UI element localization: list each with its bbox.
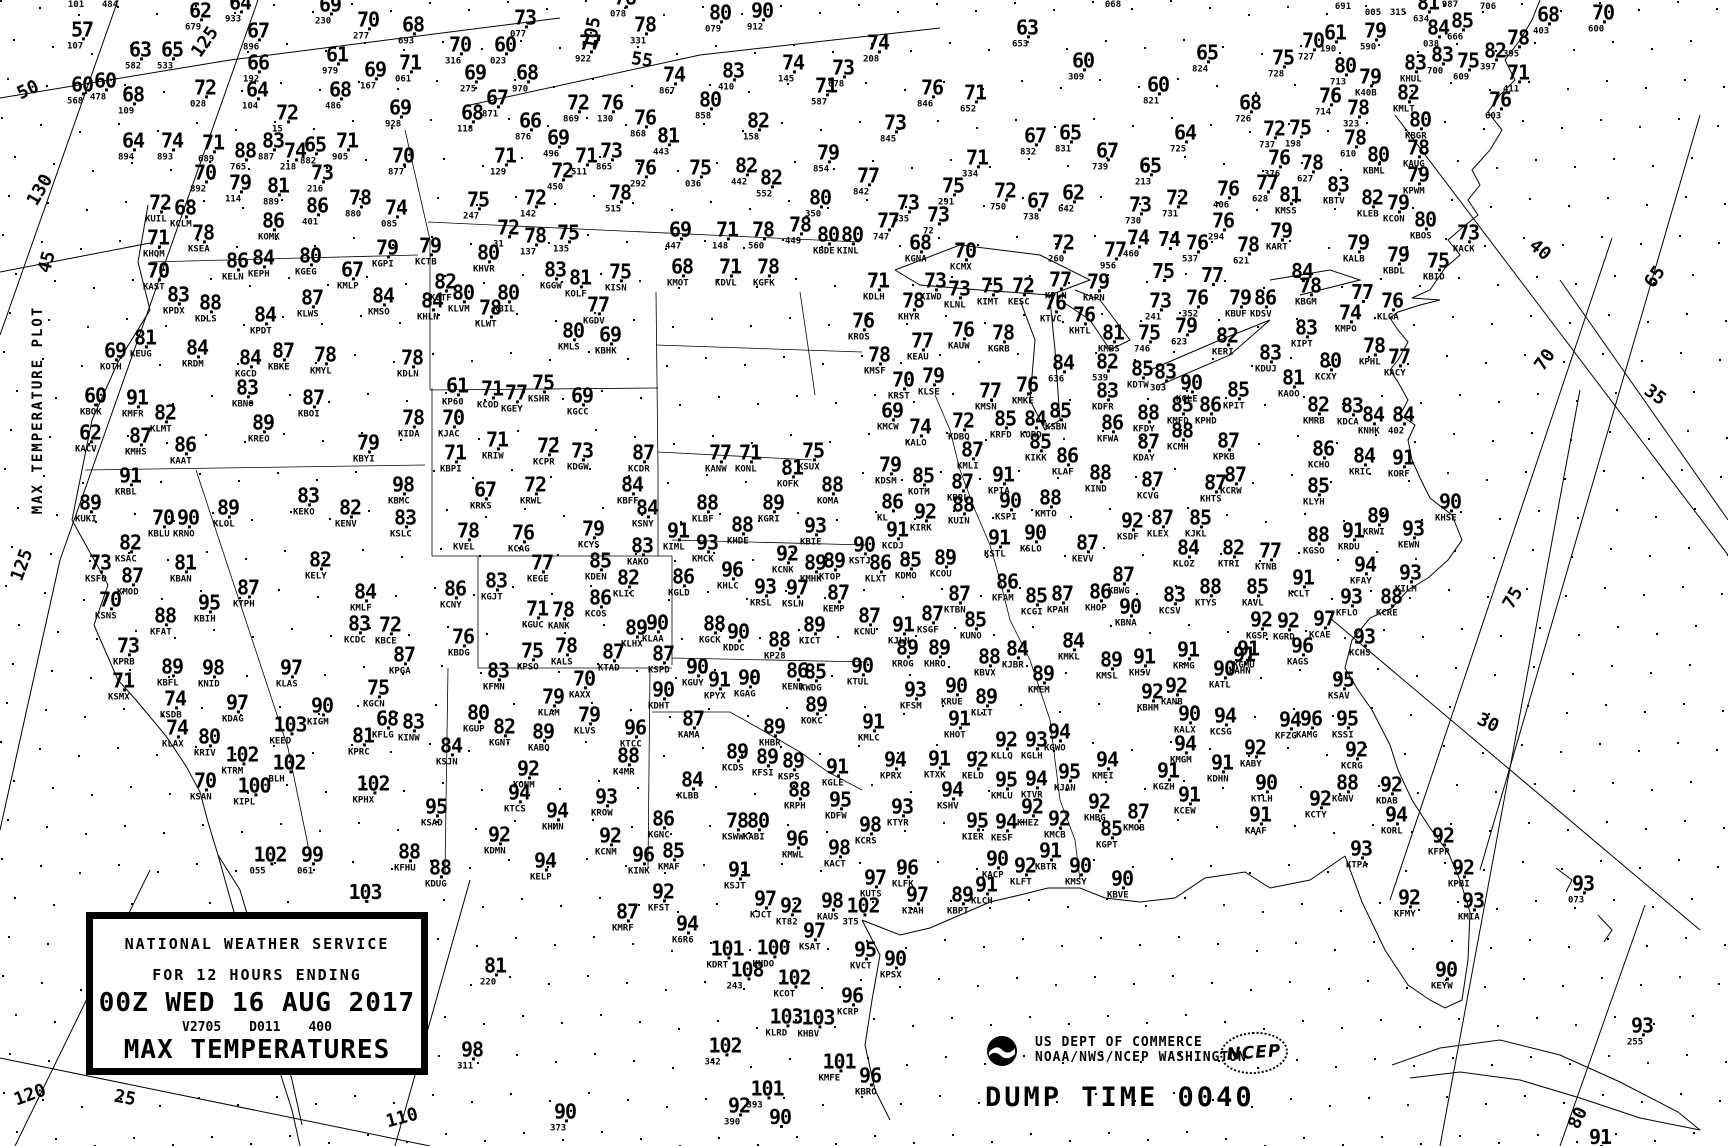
- station-temp: 80: [452, 282, 474, 302]
- station: 85KSBN: [1049, 400, 1071, 432]
- station: 98KBMC: [392, 474, 414, 506]
- commerce-text: US DEPT OF COMMERCE NOAA/NWS/NCEP WASHIN…: [1035, 1035, 1247, 1065]
- station: 75198: [1289, 117, 1311, 149]
- station-id: KCTB: [415, 258, 441, 267]
- station-temp: 86: [1312, 438, 1334, 458]
- station-dot: [977, 165, 980, 168]
- station-dot: [145, 345, 148, 348]
- station: 78KANK: [552, 599, 574, 631]
- station-dot: [932, 95, 935, 98]
- station: 75728: [1272, 47, 1294, 79]
- station: 81443: [657, 125, 679, 157]
- station-dot: [205, 95, 208, 98]
- station-temp: 78: [1407, 137, 1429, 157]
- station-dot: [209, 744, 212, 747]
- station: 79114: [229, 172, 251, 204]
- station-dot: [213, 675, 216, 678]
- station-dot: [612, 110, 615, 113]
- station-temp: 92: [776, 543, 798, 563]
- station-dot: [210, 310, 213, 313]
- station-temp: 83: [544, 259, 566, 279]
- station-id: KUNO: [960, 632, 986, 641]
- station: 73730: [1129, 194, 1151, 226]
- station-id: 311: [457, 1062, 483, 1071]
- station-dot: [1152, 699, 1155, 702]
- station-id: KSLO: [1020, 545, 1046, 554]
- station: 89KGRI: [762, 492, 784, 524]
- station-temp: 75: [1289, 117, 1311, 137]
- station-id: KIPL: [233, 798, 270, 807]
- station-dot: [291, 732, 294, 735]
- station: 75KISN: [609, 261, 631, 293]
- station: 87KMOD: [121, 565, 143, 597]
- station-temp: 93: [1462, 890, 1484, 910]
- station-dot: [1306, 335, 1309, 338]
- station-id: KLNL: [944, 301, 970, 310]
- station: 80350: [809, 187, 831, 219]
- station: 90KTUL: [851, 655, 873, 687]
- station: 70KAXX: [573, 668, 595, 700]
- station-temp: 87: [827, 582, 849, 602]
- station-temp: 76: [852, 310, 874, 330]
- station-dot: [460, 52, 463, 55]
- station-id: KMLU: [991, 792, 1017, 801]
- station: 69447: [669, 219, 691, 251]
- station-temp: 78: [401, 347, 423, 367]
- station-dot: [693, 726, 696, 729]
- station-temp: 85: [1227, 379, 1249, 399]
- station-dot: [767, 764, 770, 767]
- station-temp: 87: [1141, 469, 1163, 489]
- station: 97KCAE: [1313, 608, 1335, 640]
- station-temp: 80: [841, 224, 863, 244]
- station: 79KCTB: [419, 235, 441, 267]
- station-temp: 71: [481, 378, 503, 398]
- station-temp: 96: [859, 1065, 881, 1085]
- station-dot: [963, 512, 966, 515]
- station-id: KFLG: [372, 731, 398, 740]
- station-temp: 74: [385, 197, 407, 217]
- station: 77922: [579, 32, 601, 64]
- station-dot: [573, 338, 576, 341]
- station-dot: [1142, 376, 1145, 379]
- station-id: KDMO: [895, 572, 921, 581]
- station-temp: 76: [1044, 292, 1066, 312]
- station-temp: 83: [1163, 584, 1185, 604]
- station-temp: 92: [728, 1095, 750, 1115]
- station: 76603: [1489, 89, 1511, 121]
- station-temp: 76: [952, 319, 974, 339]
- station-dot: [1150, 173, 1153, 176]
- station-dot: [243, 762, 246, 765]
- station: 92KFPR: [1432, 825, 1454, 857]
- station-dot: [1642, 1033, 1645, 1036]
- station-dot: [815, 533, 818, 536]
- station: 86KFAM: [996, 571, 1018, 603]
- station: 90KDHT: [652, 679, 674, 711]
- station: 84KLOZ: [1177, 537, 1199, 569]
- station: 91KMLC: [862, 711, 884, 743]
- station-dot: [445, 289, 448, 292]
- station-dot: [586, 163, 589, 166]
- station-id: KTPA: [1346, 861, 1372, 870]
- station: 88KOMA: [821, 474, 843, 506]
- station-dot: [172, 57, 175, 60]
- station: 83KDUJ: [1259, 342, 1281, 374]
- station-id: KFZG: [1275, 732, 1301, 741]
- station-dot: [322, 180, 325, 183]
- station-dot: [910, 567, 913, 570]
- station: 79KPWM: [1407, 164, 1429, 196]
- station: 74145: [782, 52, 804, 84]
- station-id: 395: [1503, 50, 1529, 59]
- station: 79KALB: [1347, 232, 1369, 264]
- station: 85KOTM: [912, 465, 934, 497]
- station-temp: 74: [782, 52, 804, 72]
- station: 87KMHS: [129, 425, 151, 457]
- station-dot: [1006, 747, 1009, 750]
- station: 94KMGM: [1174, 733, 1196, 765]
- station-id: KBIH: [194, 615, 220, 624]
- station: 98KACT: [828, 837, 850, 869]
- station-temp: 87: [121, 565, 143, 585]
- station: 86KCNY: [444, 578, 466, 610]
- station-temp: 93: [1399, 562, 1421, 582]
- station-temp: 91: [928, 748, 950, 768]
- station-temp: 90: [311, 695, 333, 715]
- station-dot: [1148, 420, 1151, 423]
- station-temp: 79: [1347, 232, 1369, 252]
- station: 72869: [567, 92, 589, 124]
- station: 96KMWL: [786, 828, 808, 860]
- station-temp: 75: [532, 372, 554, 392]
- station: 73KLNL: [948, 278, 970, 310]
- station-dot: [1293, 385, 1296, 388]
- station-dot: [1059, 739, 1062, 742]
- station-temp: 87: [272, 340, 294, 360]
- station: 80079: [709, 2, 731, 34]
- station: 71511: [575, 145, 597, 177]
- station-dot: [897, 537, 900, 540]
- station-id: KTPH: [233, 600, 259, 609]
- station-dot: [1347, 726, 1350, 729]
- station-dot: [1160, 308, 1163, 311]
- station-dot: [95, 403, 98, 406]
- station: 88KIND: [1089, 462, 1111, 494]
- station-id: KGLH: [1021, 752, 1047, 761]
- station-id: KGRB: [988, 345, 1014, 354]
- station-temp: 82: [493, 716, 515, 736]
- station-dot: [359, 631, 362, 634]
- station-id: KCOD: [477, 401, 503, 410]
- station-dot: [1113, 340, 1116, 343]
- station-id: KCON: [1383, 215, 1409, 224]
- station-id: KGNA: [905, 255, 931, 264]
- station-temp: 75: [942, 175, 964, 195]
- station-temp: 83: [485, 570, 507, 590]
- station-temp: 93: [1353, 626, 1375, 646]
- station-temp: 91: [728, 859, 750, 879]
- station-temp: 77: [709, 442, 731, 462]
- station: 70KSAN: [194, 770, 216, 802]
- station-temp: 97: [226, 692, 248, 712]
- station-id: 636: [1048, 375, 1074, 384]
- station: 76KMKE: [1016, 374, 1038, 406]
- station-dot: [568, 240, 571, 243]
- station: 84KMSO: [372, 285, 394, 317]
- station: 74460: [1127, 227, 1149, 259]
- station-dot: [1548, 22, 1551, 25]
- station-dot: [1358, 115, 1361, 118]
- station-id: KLYH: [1303, 498, 1329, 507]
- station-dot: [1007, 589, 1010, 592]
- station-dot: [945, 565, 948, 568]
- station-temp: 84: [254, 304, 276, 324]
- station-dot: [504, 734, 507, 737]
- station-dot: [864, 913, 867, 916]
- station: 71652: [964, 82, 986, 114]
- station: 70KRST: [892, 369, 914, 401]
- station-id: 560: [748, 242, 774, 251]
- station-id: K4MR: [613, 768, 639, 777]
- station-dot: [1270, 360, 1273, 363]
- station: 91KRMG: [1177, 639, 1199, 671]
- station-temp: 74: [663, 64, 685, 84]
- station: 83KBTV: [1327, 174, 1349, 206]
- station: 78KMSF: [868, 344, 890, 376]
- station-temp: 60: [494, 34, 516, 54]
- station-dot: [1189, 721, 1192, 724]
- station-dot: [1080, 873, 1083, 876]
- station-dot: [82, 37, 85, 40]
- station: 78621: [1237, 234, 1259, 266]
- station: 94KELP: [534, 850, 556, 882]
- station-temp: 81: [569, 267, 591, 287]
- station-dot: [1138, 819, 1141, 822]
- station-dot: [390, 632, 393, 635]
- station-id: 552: [756, 190, 782, 199]
- station-temp: 92: [1432, 825, 1454, 845]
- station: 91KTXK: [928, 748, 950, 780]
- station-dot: [1330, 368, 1333, 371]
- station-dot: [205, 180, 208, 183]
- station-temp: 67: [1024, 125, 1046, 145]
- station-temp: 90: [738, 667, 760, 687]
- station-temp: 71: [147, 227, 169, 247]
- station: 89KCOU: [934, 547, 956, 579]
- station-id: KDSM: [875, 477, 901, 486]
- station: 90KSPI: [999, 490, 1021, 522]
- station: 87KPAH: [1051, 583, 1073, 615]
- station-id: KHLN: [417, 313, 443, 322]
- station-dot: [870, 1083, 873, 1086]
- station-dot: [325, 362, 328, 365]
- station-temp: 86: [306, 195, 328, 215]
- station: 65533: [161, 39, 183, 71]
- station-temp: 94: [1025, 768, 1047, 788]
- station-id: KAMA: [678, 731, 704, 740]
- station: 75036: [689, 157, 711, 189]
- station-temp: 90: [1180, 372, 1202, 392]
- station: 85KCGI: [1025, 585, 1047, 617]
- station-dot: [613, 659, 616, 662]
- station-id: KLLQ: [991, 752, 1017, 761]
- station-dot: [110, 607, 113, 610]
- station-id: 342: [704, 1058, 741, 1067]
- station-dot: [902, 814, 905, 817]
- station-dot: [742, 532, 745, 535]
- station: 71KDLH: [867, 270, 889, 302]
- station-id: 634: [1413, 15, 1439, 24]
- station-id: 130: [597, 115, 623, 124]
- station-id: KLFT: [1010, 878, 1036, 887]
- station-id: KOMK: [258, 233, 284, 242]
- station-dot: [1364, 644, 1367, 647]
- station: 84KSNY: [636, 497, 658, 529]
- station: 87KLEX: [1151, 507, 1173, 539]
- station-dot: [468, 538, 471, 541]
- station-temp: 102: [708, 1035, 741, 1055]
- station-id: 621: [1233, 257, 1259, 266]
- station-temp: 90: [1435, 959, 1457, 979]
- station-dot: [939, 655, 942, 658]
- station-temp: 78: [1301, 152, 1323, 172]
- station-dot: [765, 594, 768, 597]
- station: 92KABY: [1244, 737, 1266, 769]
- station: 85KIKK: [1029, 431, 1051, 463]
- station: 60KBOK: [84, 385, 106, 417]
- station-id: KCDC: [344, 636, 370, 645]
- station-dot: [582, 458, 585, 461]
- station-temp: 68: [461, 102, 483, 122]
- station: 88KMTO: [1039, 487, 1061, 519]
- station-dot: [1169, 247, 1172, 250]
- station: 78KGRB: [992, 322, 1014, 354]
- station-dot: [1083, 68, 1086, 71]
- station-dot: [645, 32, 648, 35]
- station: 80KGUP: [467, 702, 489, 734]
- station-id: KHBV: [797, 1030, 834, 1039]
- station-temp: 77: [1388, 346, 1410, 366]
- station-id: 3T5: [842, 918, 879, 927]
- station-temp: 91: [992, 464, 1014, 484]
- station: 94KMEI: [1096, 749, 1118, 781]
- station-temp: 83: [1327, 174, 1349, 194]
- station-temp: 80: [467, 702, 489, 722]
- station-id: KESF: [991, 834, 1017, 843]
- station-dot: [1302, 653, 1305, 656]
- station: 94KORL: [1385, 804, 1407, 836]
- station-dot: [350, 515, 353, 518]
- station: 86KDSV: [1254, 287, 1276, 319]
- station: 85KMAF: [662, 840, 684, 872]
- station: 93KROW: [595, 786, 617, 818]
- station: 72KUIL: [149, 192, 171, 224]
- station: 79KGPI: [376, 237, 398, 269]
- station-temp: 95: [854, 939, 876, 959]
- station-dot: [436, 814, 439, 817]
- station: 84KNHK: [1362, 404, 1384, 436]
- station-temp: 93: [804, 515, 826, 535]
- station-id: KBGM: [1295, 298, 1321, 307]
- station-dot: [374, 791, 377, 794]
- station: 94KGWO: [1048, 721, 1070, 753]
- station-dot: [739, 877, 742, 880]
- station-id: KDGW: [567, 463, 593, 472]
- station-id: 653: [1012, 40, 1038, 49]
- station: 72142: [524, 187, 546, 219]
- station-dot: [140, 443, 143, 446]
- station-dot: [1140, 212, 1143, 215]
- station-temp: 71: [202, 132, 224, 152]
- station: 71334: [966, 147, 988, 179]
- station-id: KPSO: [517, 663, 543, 672]
- station-id: KIKK: [1025, 454, 1051, 463]
- station-temp: 84: [372, 285, 394, 305]
- station-id: KREO: [248, 435, 274, 444]
- station-id: KBLU: [148, 530, 174, 539]
- station: 70892: [194, 162, 216, 194]
- station-id: KCXY: [1315, 373, 1341, 382]
- station-id: KERI: [1212, 348, 1238, 357]
- station-dot: [657, 630, 660, 633]
- station: 86KGNC: [652, 808, 674, 840]
- station-dot: [455, 460, 458, 463]
- station: 75KPSO: [521, 640, 543, 672]
- station-temp: 85: [912, 465, 934, 485]
- station-dot: [1353, 538, 1356, 541]
- station-id: KMFR: [122, 410, 148, 419]
- station: 72KCPR: [537, 435, 559, 467]
- station-id: 842: [853, 188, 879, 197]
- station-dot: [1025, 873, 1028, 876]
- station-id: 142: [520, 210, 546, 219]
- station: 90KGAG: [738, 667, 760, 699]
- station-dot: [645, 125, 648, 128]
- station-dot: [873, 729, 876, 732]
- station-id: KUIN: [948, 517, 974, 526]
- station-id: KMSF: [864, 367, 890, 376]
- station-id: 079: [705, 25, 731, 34]
- station: 81KEUG: [134, 327, 156, 359]
- station-id: KBPI: [440, 465, 466, 474]
- station-temp: 71: [336, 130, 358, 150]
- station-id: KIND: [1085, 485, 1111, 494]
- station: 69KOTH: [104, 340, 126, 372]
- station-temp: 108: [730, 959, 763, 979]
- station-id: KDHT: [648, 702, 674, 711]
- station-dot: [726, 1053, 729, 1056]
- station-dot: [1010, 508, 1013, 511]
- station-temp: 87: [858, 605, 880, 625]
- station-dot: [923, 483, 926, 486]
- station-temp: 88: [1380, 586, 1402, 606]
- station-id: KCNM: [595, 848, 621, 857]
- station-temp: 70: [194, 770, 216, 790]
- station: 83KINW: [402, 711, 424, 743]
- station-temp: 90: [686, 656, 708, 676]
- station-dot: [320, 567, 323, 570]
- station-dot: [611, 158, 614, 161]
- station-dot: [1200, 525, 1203, 528]
- station: 67832: [1024, 125, 1046, 157]
- station-id: KRPH: [784, 802, 810, 811]
- station-id: KBAN: [170, 575, 196, 584]
- station: 82KERI: [1216, 325, 1238, 357]
- station: 72KRWL: [524, 474, 546, 506]
- station-id: KAGS: [1287, 658, 1313, 667]
- station: 88KP28: [768, 629, 790, 661]
